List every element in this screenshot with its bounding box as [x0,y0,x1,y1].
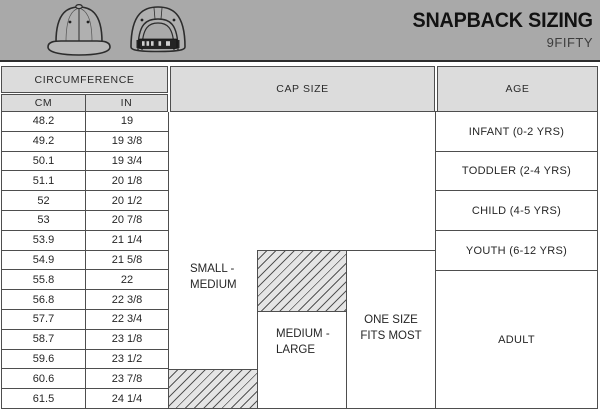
cm-cell: 58.7 [2,330,85,350]
snapback-sizing-chart: SNAPBACK SIZING 9FIFTY CIRCUMFERENCE CM … [0,0,600,411]
cm-cell: 61.5 [2,389,85,409]
in-cell: 24 1/4 [86,389,168,409]
age-header: AGE [437,66,598,112]
in-cell: 19 [86,112,168,132]
cm-cell: 57.7 [2,310,85,330]
age-adult-cell: ADULT [435,270,598,409]
cm-cell: 60.6 [2,369,85,389]
age-infant-cell: INFANT (0-2 YRS) [435,111,598,152]
hatched-cell [257,250,347,312]
in-cell: 20 1/8 [86,171,168,191]
cap-size-small-medium: SMALL - MEDIUM [168,250,258,369]
cm-cell: 55.8 [2,270,85,290]
page-title: SNAPBACK SIZING [413,9,593,33]
cm-cell: 53.9 [2,231,85,251]
banner: SNAPBACK SIZING 9FIFTY [0,0,600,62]
cm-cell: 49.2 [2,132,85,152]
in-cell: 20 7/8 [86,211,168,231]
cap-size-empty-cell [168,112,436,251]
page-subtitle: 9FIFTY [401,35,593,50]
cm-cell: 48.2 [2,112,85,132]
cap-size-one-size-fits-most: ONE SIZE FITS MOST [346,250,436,409]
in-cell: 21 5/8 [86,251,168,271]
cm-column: 48.2 49.2 50.1 51.1 52 53 53.9 54.9 55.8… [1,112,86,409]
circumference-header: CIRCUMFERENCE [1,66,168,93]
in-cell: 19 3/8 [86,132,168,152]
in-cell: 22 3/4 [86,310,168,330]
cm-cell: 56.8 [2,290,85,310]
in-cell: 22 [86,270,168,290]
in-header: IN [85,94,168,112]
snapback-front-icon [42,3,116,59]
in-cell: 23 1/8 [86,330,168,350]
age-youth-cell: YOUTH (6-12 YRS) [435,230,598,271]
cap-illustrations [42,3,191,59]
in-cell: 19 3/4 [86,152,168,172]
cm-cell: 51.1 [2,171,85,191]
snapback-back-icon [125,3,191,59]
cm-header: CM [1,94,86,112]
cap-size-header: CAP SIZE [170,66,435,112]
in-cell: 20 1/2 [86,191,168,211]
in-cell: 22 3/8 [86,290,168,310]
title-block: SNAPBACK SIZING 9FIFTY [401,9,593,50]
cm-cell: 50.1 [2,152,85,172]
in-cell: 21 1/4 [86,231,168,251]
in-cell: 23 1/2 [86,350,168,370]
cm-cell: 52 [2,191,85,211]
age-toddler-cell: TODDLER (2-4 YRS) [435,151,598,191]
in-cell: 23 7/8 [86,369,168,389]
cm-cell: 54.9 [2,251,85,271]
cap-size-medium-large: MEDIUM - LARGE [257,311,347,409]
age-child-cell: CHILD (4-5 YRS) [435,190,598,231]
hatched-cell [168,369,258,409]
cm-cell: 59.6 [2,350,85,370]
cm-cell: 53 [2,211,85,231]
in-column: 19 19 3/8 19 3/4 20 1/8 20 1/2 20 7/8 21… [86,112,169,409]
